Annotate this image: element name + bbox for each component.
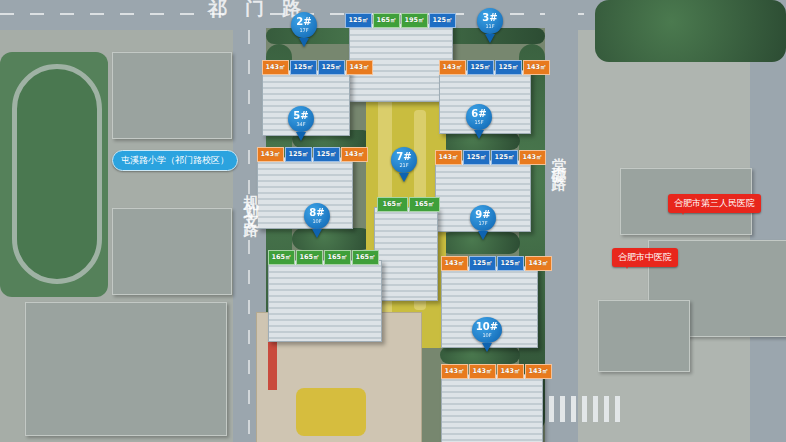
- road-label-right: 棠樾路: [549, 146, 568, 173]
- building-floors: 34F: [296, 122, 305, 127]
- building-pin-10: 10# 10F: [472, 317, 502, 352]
- area-tag: 165㎡: [377, 197, 408, 212]
- area-tag: 143㎡: [469, 364, 496, 379]
- running-track: [12, 64, 102, 284]
- school-label: 屯溪路小学（祁门路校区）: [112, 150, 238, 171]
- school-building-north: [112, 52, 232, 139]
- building-number: 5#: [293, 111, 308, 121]
- area-tag-row-8: 165㎡ 165㎡ 165㎡ 165㎡: [268, 250, 379, 265]
- area-tag: 143㎡: [441, 364, 468, 379]
- building-number: 10#: [476, 322, 498, 332]
- pin-tail: [485, 34, 495, 43]
- road-label-left: 规划支路: [241, 183, 260, 219]
- area-tag: 143㎡: [346, 60, 373, 75]
- area-tag: 125㎡: [495, 60, 522, 75]
- building-floors: 21F: [399, 163, 408, 168]
- area-tag: 165㎡: [352, 250, 379, 265]
- road-left-lane-marking: [248, 30, 250, 442]
- area-tag: 143㎡: [497, 364, 524, 379]
- area-tag: 165㎡: [324, 250, 351, 265]
- pin-head: 7# 21F: [391, 147, 417, 173]
- area-tag: 143㎡: [525, 364, 552, 379]
- aerial-site-plan: 祁门路 规划支路 棠樾路 屯溪路小学（祁门路校区） 合肥市第三人民医院 合肥市中…: [0, 0, 786, 442]
- building-floors: 15F: [474, 120, 483, 125]
- residential-tower-7: [374, 207, 438, 301]
- school-building-south: [112, 208, 232, 295]
- building-pin-9: 9# 17F: [470, 205, 496, 240]
- area-tag: 165㎡: [373, 13, 400, 28]
- building-floors: 11F: [485, 24, 494, 29]
- pin-head: 3# 11F: [477, 8, 503, 34]
- area-tag: 125㎡: [313, 147, 340, 162]
- building-pin-6: 6# 15F: [466, 104, 492, 139]
- pin-head: 8# 10F: [304, 203, 330, 229]
- area-tag: 143㎡: [525, 256, 552, 271]
- area-tag: 125㎡: [467, 60, 494, 75]
- building-floors: 17F: [299, 28, 308, 33]
- area-tag: 125㎡: [497, 256, 524, 271]
- area-tag: 125㎡: [429, 13, 456, 28]
- building-number: 6#: [471, 109, 486, 119]
- buildings-bottom-left: [25, 302, 227, 436]
- area-tag: 143㎡: [519, 150, 546, 165]
- crosswalk: [549, 396, 621, 422]
- area-tag: 143㎡: [441, 256, 468, 271]
- building-right-south: [598, 300, 690, 372]
- building-number: 3#: [482, 13, 497, 23]
- area-tag-row-10: 143㎡ 143㎡ 143㎡ 143㎡: [441, 364, 552, 379]
- trees-top-right: [595, 0, 786, 62]
- pin-tail: [312, 229, 322, 238]
- area-tag: 125㎡: [491, 150, 518, 165]
- pin-tail: [299, 38, 309, 47]
- area-tag: 125㎡: [290, 60, 317, 75]
- road-far-right: [750, 0, 786, 442]
- pin-head: 5# 34F: [288, 106, 314, 132]
- area-tag: 143㎡: [435, 150, 462, 165]
- residential-tower-8: [268, 260, 382, 342]
- area-tag: 165㎡: [296, 250, 323, 265]
- area-tag-row-top: 125㎡ 165㎡ 195㎡ 125㎡: [345, 13, 456, 28]
- building-floors: 10F: [482, 333, 491, 338]
- area-tag-row-2: 143㎡ 125㎡ 125㎡ 143㎡: [262, 60, 373, 75]
- kindergarten-playground: [296, 388, 366, 436]
- area-tag: 143㎡: [523, 60, 550, 75]
- building-number: 7#: [396, 152, 411, 162]
- pin-head: 6# 15F: [466, 104, 492, 130]
- road-top-lane-marking: [0, 13, 640, 15]
- building-pin-3: 3# 11F: [477, 8, 503, 43]
- building-floors: 10F: [312, 219, 321, 224]
- hospital-label-bottom: 合肥市中医院: [612, 248, 678, 267]
- area-tag: 143㎡: [341, 147, 368, 162]
- pin-tail: [399, 173, 409, 182]
- area-tag-row-3: 143㎡ 125㎡ 125㎡ 143㎡: [439, 60, 550, 75]
- building-pin-5: 5# 34F: [288, 106, 314, 141]
- building-number: 8#: [309, 208, 324, 218]
- pin-tail: [474, 130, 484, 139]
- area-tag-row-5: 143㎡ 125㎡ 125㎡ 143㎡: [257, 147, 368, 162]
- pin-tail: [482, 343, 492, 352]
- area-tag: 165㎡: [409, 197, 440, 212]
- area-tag: 143㎡: [257, 147, 284, 162]
- hospital-label-top: 合肥市第三人民医院: [668, 194, 761, 213]
- residential-tower-10: [441, 374, 543, 442]
- building-pin-7: 7# 21F: [391, 147, 417, 182]
- area-tag-row-6: 143㎡ 125㎡ 125㎡ 143㎡: [435, 150, 546, 165]
- building-number: 2#: [296, 17, 311, 27]
- area-tag: 143㎡: [262, 60, 289, 75]
- area-tag: 125㎡: [318, 60, 345, 75]
- area-tag-row-9: 143㎡ 125㎡ 125㎡ 143㎡: [441, 256, 552, 271]
- area-tag: 165㎡: [268, 250, 295, 265]
- area-tag: 195㎡: [401, 13, 428, 28]
- area-tag: 125㎡: [285, 147, 312, 162]
- pin-head: 2# 17F: [291, 12, 317, 38]
- area-tag: 125㎡: [463, 150, 490, 165]
- area-tag-row-7: 165㎡ 165㎡: [377, 197, 440, 212]
- pin-tail: [296, 132, 306, 141]
- pin-head: 9# 17F: [470, 205, 496, 231]
- building-floors: 17F: [478, 221, 487, 226]
- pin-head: 10# 10F: [472, 317, 502, 343]
- pin-tail: [478, 231, 488, 240]
- building-pin-2: 2# 17F: [291, 12, 317, 47]
- building-pin-8: 8# 10F: [304, 203, 330, 238]
- area-tag: 125㎡: [469, 256, 496, 271]
- area-tag: 125㎡: [345, 13, 372, 28]
- area-tag: 143㎡: [439, 60, 466, 75]
- building-number: 9#: [475, 210, 490, 220]
